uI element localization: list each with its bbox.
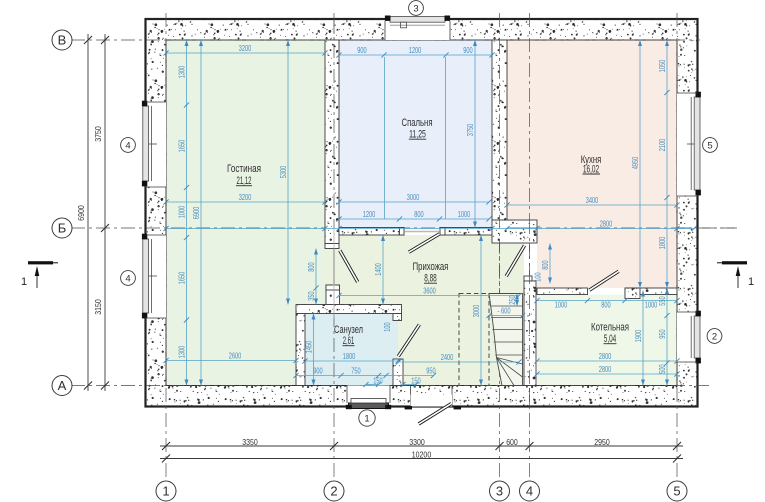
svg-text:4950: 4950 <box>631 156 640 169</box>
svg-text:900: 900 <box>313 366 323 375</box>
svg-text:1800: 1800 <box>343 352 356 361</box>
svg-text:900: 900 <box>357 46 367 55</box>
svg-text:1800: 1800 <box>658 236 667 249</box>
svg-text:3000: 3000 <box>407 193 420 202</box>
svg-text:100: 100 <box>534 272 543 282</box>
svg-text:3750: 3750 <box>466 123 475 136</box>
svg-text:Б: Б <box>58 221 67 236</box>
svg-text:1000: 1000 <box>645 301 658 310</box>
svg-text:3300: 3300 <box>409 438 425 447</box>
svg-text:3200: 3200 <box>239 193 252 202</box>
svg-text:5,04: 5,04 <box>604 333 617 345</box>
svg-text:1300: 1300 <box>177 345 186 358</box>
svg-text:1: 1 <box>21 276 27 288</box>
svg-text:1200: 1200 <box>363 210 376 219</box>
svg-text:900: 900 <box>463 46 473 55</box>
svg-text:1900: 1900 <box>634 329 643 342</box>
svg-text:5300: 5300 <box>279 165 288 178</box>
svg-text:3: 3 <box>496 484 503 499</box>
svg-text:3: 3 <box>413 3 418 14</box>
svg-text:4: 4 <box>125 273 130 284</box>
svg-text:2,61: 2,61 <box>343 335 355 347</box>
svg-text:800: 800 <box>541 260 550 270</box>
svg-text:100: 100 <box>383 322 392 332</box>
svg-text:3400: 3400 <box>586 196 599 205</box>
svg-text:1: 1 <box>162 484 169 499</box>
svg-text:10200: 10200 <box>412 451 432 460</box>
svg-text:6900: 6900 <box>77 205 86 221</box>
svg-text:Котельная: Котельная <box>591 322 629 334</box>
svg-text:550: 550 <box>658 296 667 306</box>
svg-text:3000: 3000 <box>472 304 481 317</box>
svg-text:1300: 1300 <box>177 65 186 78</box>
svg-text:16,02: 16,02 <box>583 163 599 175</box>
svg-text:3350: 3350 <box>242 438 258 447</box>
svg-text:2600: 2600 <box>229 351 242 360</box>
svg-text:1000: 1000 <box>555 301 568 310</box>
svg-text:1450: 1450 <box>304 340 313 353</box>
svg-text:11,25: 11,25 <box>409 129 426 141</box>
svg-text:800: 800 <box>307 262 316 272</box>
svg-text:1: 1 <box>748 276 754 288</box>
svg-text:1050: 1050 <box>658 59 667 72</box>
svg-text:Гостиная: Гостиная <box>227 163 261 175</box>
svg-text:2950: 2950 <box>594 438 610 447</box>
svg-text:3150: 3150 <box>94 299 103 315</box>
svg-text:5: 5 <box>707 140 712 151</box>
svg-text:6900: 6900 <box>192 206 201 219</box>
svg-text:1650: 1650 <box>177 139 186 152</box>
svg-text:950: 950 <box>426 366 436 375</box>
svg-text:1400: 1400 <box>374 263 383 276</box>
svg-text:1000: 1000 <box>177 205 186 218</box>
svg-text:350: 350 <box>307 291 316 301</box>
svg-text:150: 150 <box>411 377 421 386</box>
svg-text:4: 4 <box>526 484 533 499</box>
svg-text:5: 5 <box>673 484 680 499</box>
svg-text:4: 4 <box>125 140 130 151</box>
svg-text:800: 800 <box>414 210 424 219</box>
svg-text:В: В <box>58 33 67 48</box>
svg-text:3200: 3200 <box>239 44 252 53</box>
svg-text:2800: 2800 <box>599 365 612 374</box>
svg-text:21,12: 21,12 <box>237 175 252 187</box>
svg-text:800: 800 <box>601 301 611 310</box>
svg-text:8,88: 8,88 <box>424 273 437 285</box>
svg-text:Спальня: Спальня <box>402 117 433 129</box>
svg-text:2: 2 <box>712 331 717 342</box>
svg-text:950: 950 <box>658 329 667 339</box>
svg-text:500: 500 <box>658 364 667 374</box>
svg-text:250: 250 <box>508 295 517 305</box>
svg-text:А: А <box>58 378 67 393</box>
svg-text:1000: 1000 <box>458 210 471 219</box>
svg-text:Прихожая: Прихожая <box>413 261 449 273</box>
svg-text:750: 750 <box>351 366 361 375</box>
svg-text:1: 1 <box>364 413 369 424</box>
svg-text:3750: 3750 <box>94 126 103 142</box>
svg-text:2800: 2800 <box>600 219 613 228</box>
svg-text:1200: 1200 <box>409 46 422 55</box>
svg-text:2100: 2100 <box>658 138 667 151</box>
svg-text:2800: 2800 <box>599 352 612 361</box>
svg-text:3600: 3600 <box>423 286 436 295</box>
svg-text:600: 600 <box>506 438 518 447</box>
svg-text:150: 150 <box>373 377 383 386</box>
svg-text:- 600: - 600 <box>498 306 511 315</box>
svg-text:2400: 2400 <box>441 353 454 362</box>
svg-text:1650: 1650 <box>177 271 186 284</box>
svg-text:2: 2 <box>330 484 337 499</box>
